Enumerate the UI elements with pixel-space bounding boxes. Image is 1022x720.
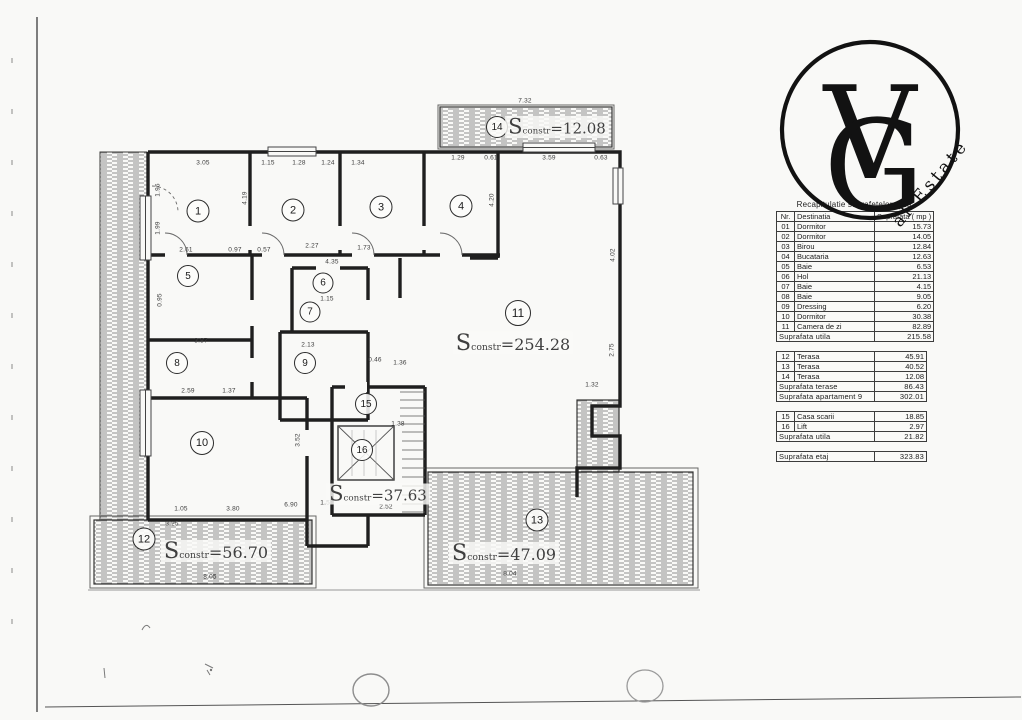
common-areas-table: 15Casa scarii18.8516Lift2.97Suprafata ut…: [776, 411, 927, 442]
dimension-label: 4.02: [610, 248, 617, 261]
cell-name: Casa scarii: [795, 412, 875, 422]
cell-name: Camera de zi: [795, 322, 875, 332]
total-value: 215.58: [875, 332, 934, 342]
dimension-label: 3.25: [165, 521, 178, 528]
total-value: 86.43: [875, 382, 927, 392]
room-number-badge: 7: [300, 302, 321, 323]
area-label: Sconstr=254.28: [453, 332, 573, 354]
dimension-label: 2.59: [181, 388, 194, 395]
cell-name: Terasa: [795, 352, 875, 362]
scanned-floor-plan-page: { "logo": { "monogram_v": "V", "monogram…: [0, 0, 1022, 720]
cell-area: 12.63: [875, 252, 934, 262]
dimension-label: 1.24: [321, 160, 334, 167]
area-label: Sconstr=56.70: [161, 540, 271, 562]
cell-area: 18.85: [875, 412, 927, 422]
dimension-label: 2.27: [305, 243, 318, 250]
dimension-label: 8.05: [203, 574, 216, 581]
total-value: 302.01: [875, 392, 927, 402]
cell-name: Dressing: [795, 302, 875, 312]
dimension-label: 1.32: [585, 382, 598, 389]
table-row: 04Bucataria12.63: [777, 252, 934, 262]
terraces-table: 12Terasa45.9113Terasa40.5214Terasa12.08S…: [776, 351, 927, 402]
dimension-label: 2.61: [179, 247, 192, 254]
dimension-label: 0.57: [257, 247, 270, 254]
cell-nr: 09: [777, 302, 795, 312]
cell-name: Terasa: [795, 372, 875, 382]
cell-area: 2.97: [875, 422, 927, 432]
cell-name: Bucataria: [795, 252, 875, 262]
cell-name: Baie: [795, 282, 875, 292]
dimension-label: 2.52: [379, 504, 392, 511]
dimension-label: 0.97: [228, 247, 241, 254]
total-row: Suprafata terase86.43: [777, 382, 927, 392]
floor-total-table: Suprafata etaj323.83: [776, 451, 927, 462]
dimension-label: 1.36: [393, 360, 406, 367]
dimension-label: 1.28: [292, 160, 305, 167]
room-number-badge: 2: [282, 199, 305, 222]
cell-area: 82.89: [875, 322, 934, 332]
table-row: 08Baie9.05: [777, 292, 934, 302]
cell-nr: 15: [777, 412, 795, 422]
room-number-badge: 6: [313, 273, 334, 294]
total-value: 21.82: [875, 432, 927, 442]
dimension-label: 3.52: [295, 433, 302, 446]
cell-nr: 06: [777, 272, 795, 282]
dimension-label: 2.75: [609, 343, 616, 356]
dimension-label: 8.04: [503, 571, 516, 578]
cell-nr: 07: [777, 282, 795, 292]
dimension-label: 4.35: [325, 259, 338, 266]
table-row: 06Hol21.13: [777, 272, 934, 282]
cell-name: Lift: [795, 422, 875, 432]
total-label: Suprafata apartament 9: [777, 392, 875, 402]
table-row: 11Camera de zi82.89: [777, 322, 934, 332]
table-row: 12Terasa45.91: [777, 352, 927, 362]
table-row: 05Baie6.53: [777, 262, 934, 272]
cell-nr: 14: [777, 372, 795, 382]
dimension-label: 1.38: [391, 421, 404, 428]
total-row: Suprafata utila215.58: [777, 332, 934, 342]
room-number-badge: 9: [294, 352, 316, 374]
total-value: 323.83: [875, 452, 927, 462]
cell-name: Hol: [795, 272, 875, 282]
dimension-label: 1.15: [261, 160, 274, 167]
room-number-badge: 5: [177, 265, 199, 287]
dimension-label: 3.80: [226, 506, 239, 513]
dimension-label: 3.87: [194, 338, 207, 345]
total-label: Suprafata utila: [777, 432, 875, 442]
cell-nr: 11: [777, 322, 795, 332]
cell-area: 6.53: [875, 262, 934, 272]
dimension-label: 4.19: [242, 191, 249, 204]
cell-area: 4.15: [875, 282, 934, 292]
cell-name: Dormitor: [795, 312, 875, 322]
total-label: Suprafata etaj: [777, 452, 875, 462]
cell-area: 40.52: [875, 362, 927, 372]
dimension-label: 7.32: [518, 98, 531, 105]
dimension-label: 0.63: [594, 155, 607, 162]
vg-logo: V G al Estate: [770, 28, 980, 243]
cell-nr: 12: [777, 352, 795, 362]
room-number-badge: 3: [370, 196, 393, 219]
cell-area: 12.08: [875, 372, 927, 382]
cell-nr: 04: [777, 252, 795, 262]
dimension-label: 3.59: [542, 155, 555, 162]
table-row: 09Dressing6.20: [777, 302, 934, 312]
room-number-badge: 16: [351, 439, 373, 461]
total-row: Suprafata apartament 9302.01: [777, 392, 927, 402]
total-row: Suprafata etaj323.83: [777, 452, 927, 462]
cell-name: Terasa: [795, 362, 875, 372]
dimension-label: 1.05: [174, 506, 187, 513]
total-label: Suprafata utila: [777, 332, 875, 342]
dimension-label: 1.96: [155, 183, 162, 196]
cell-name: Baie: [795, 292, 875, 302]
room-number-badge: 4: [450, 195, 473, 218]
dimension-label: 6.90: [284, 502, 297, 509]
dimension-label: 4.20: [489, 193, 496, 206]
table-row: 14Terasa12.08: [777, 372, 927, 382]
dimension-label: 1.15: [320, 296, 333, 303]
dimension-label: 1.99: [155, 221, 162, 234]
area-label: Sconstr=12.08: [505, 117, 609, 138]
total-label: Suprafata terase: [777, 382, 875, 392]
cell-area: 30.38: [875, 312, 934, 322]
dimension-label: 0.61: [484, 155, 497, 162]
dimension-label: 0.95: [157, 293, 164, 306]
area-label: Sconstr=47.09: [449, 542, 559, 564]
cell-nr: 05: [777, 262, 795, 272]
cell-name: Baie: [795, 262, 875, 272]
dimension-label: 0.46: [368, 357, 381, 364]
table-row: 15Casa scarii18.85: [777, 412, 927, 422]
dimension-label: 1.29: [451, 155, 464, 162]
room-number-badge: 10: [190, 431, 214, 455]
dimension-label: 1.37: [222, 388, 235, 395]
cell-area: 21.13: [875, 272, 934, 282]
cell-area: 6.20: [875, 302, 934, 312]
room-number-badge: 13: [526, 509, 549, 532]
dimension-label: 3.05: [196, 160, 209, 167]
dimension-label: 2.13: [301, 342, 314, 349]
room-number-badge: 12: [133, 528, 156, 551]
cell-nr: 13: [777, 362, 795, 372]
cell-area: 9.05: [875, 292, 934, 302]
table-row: 07Baie4.15: [777, 282, 934, 292]
cell-area: 45.91: [875, 352, 927, 362]
table-row: 10Dormitor30.38: [777, 312, 934, 322]
dimension-label: 1.73: [357, 245, 370, 252]
cell-nr: 08: [777, 292, 795, 302]
table-row: 16Lift2.97: [777, 422, 927, 432]
room-number-badge: 8: [166, 352, 188, 374]
table-row: 13Terasa40.52: [777, 362, 927, 372]
dimension-label: 1.34: [351, 160, 364, 167]
total-row: Suprafata utila21.82: [777, 432, 927, 442]
area-label: Sconstr=37.63: [326, 484, 430, 505]
cell-nr: 16: [777, 422, 795, 432]
room-number-badge: 15: [355, 393, 377, 415]
cell-nr: 10: [777, 312, 795, 322]
room-number-badge: 1: [187, 200, 210, 223]
room-number-badge: 11: [505, 300, 531, 326]
